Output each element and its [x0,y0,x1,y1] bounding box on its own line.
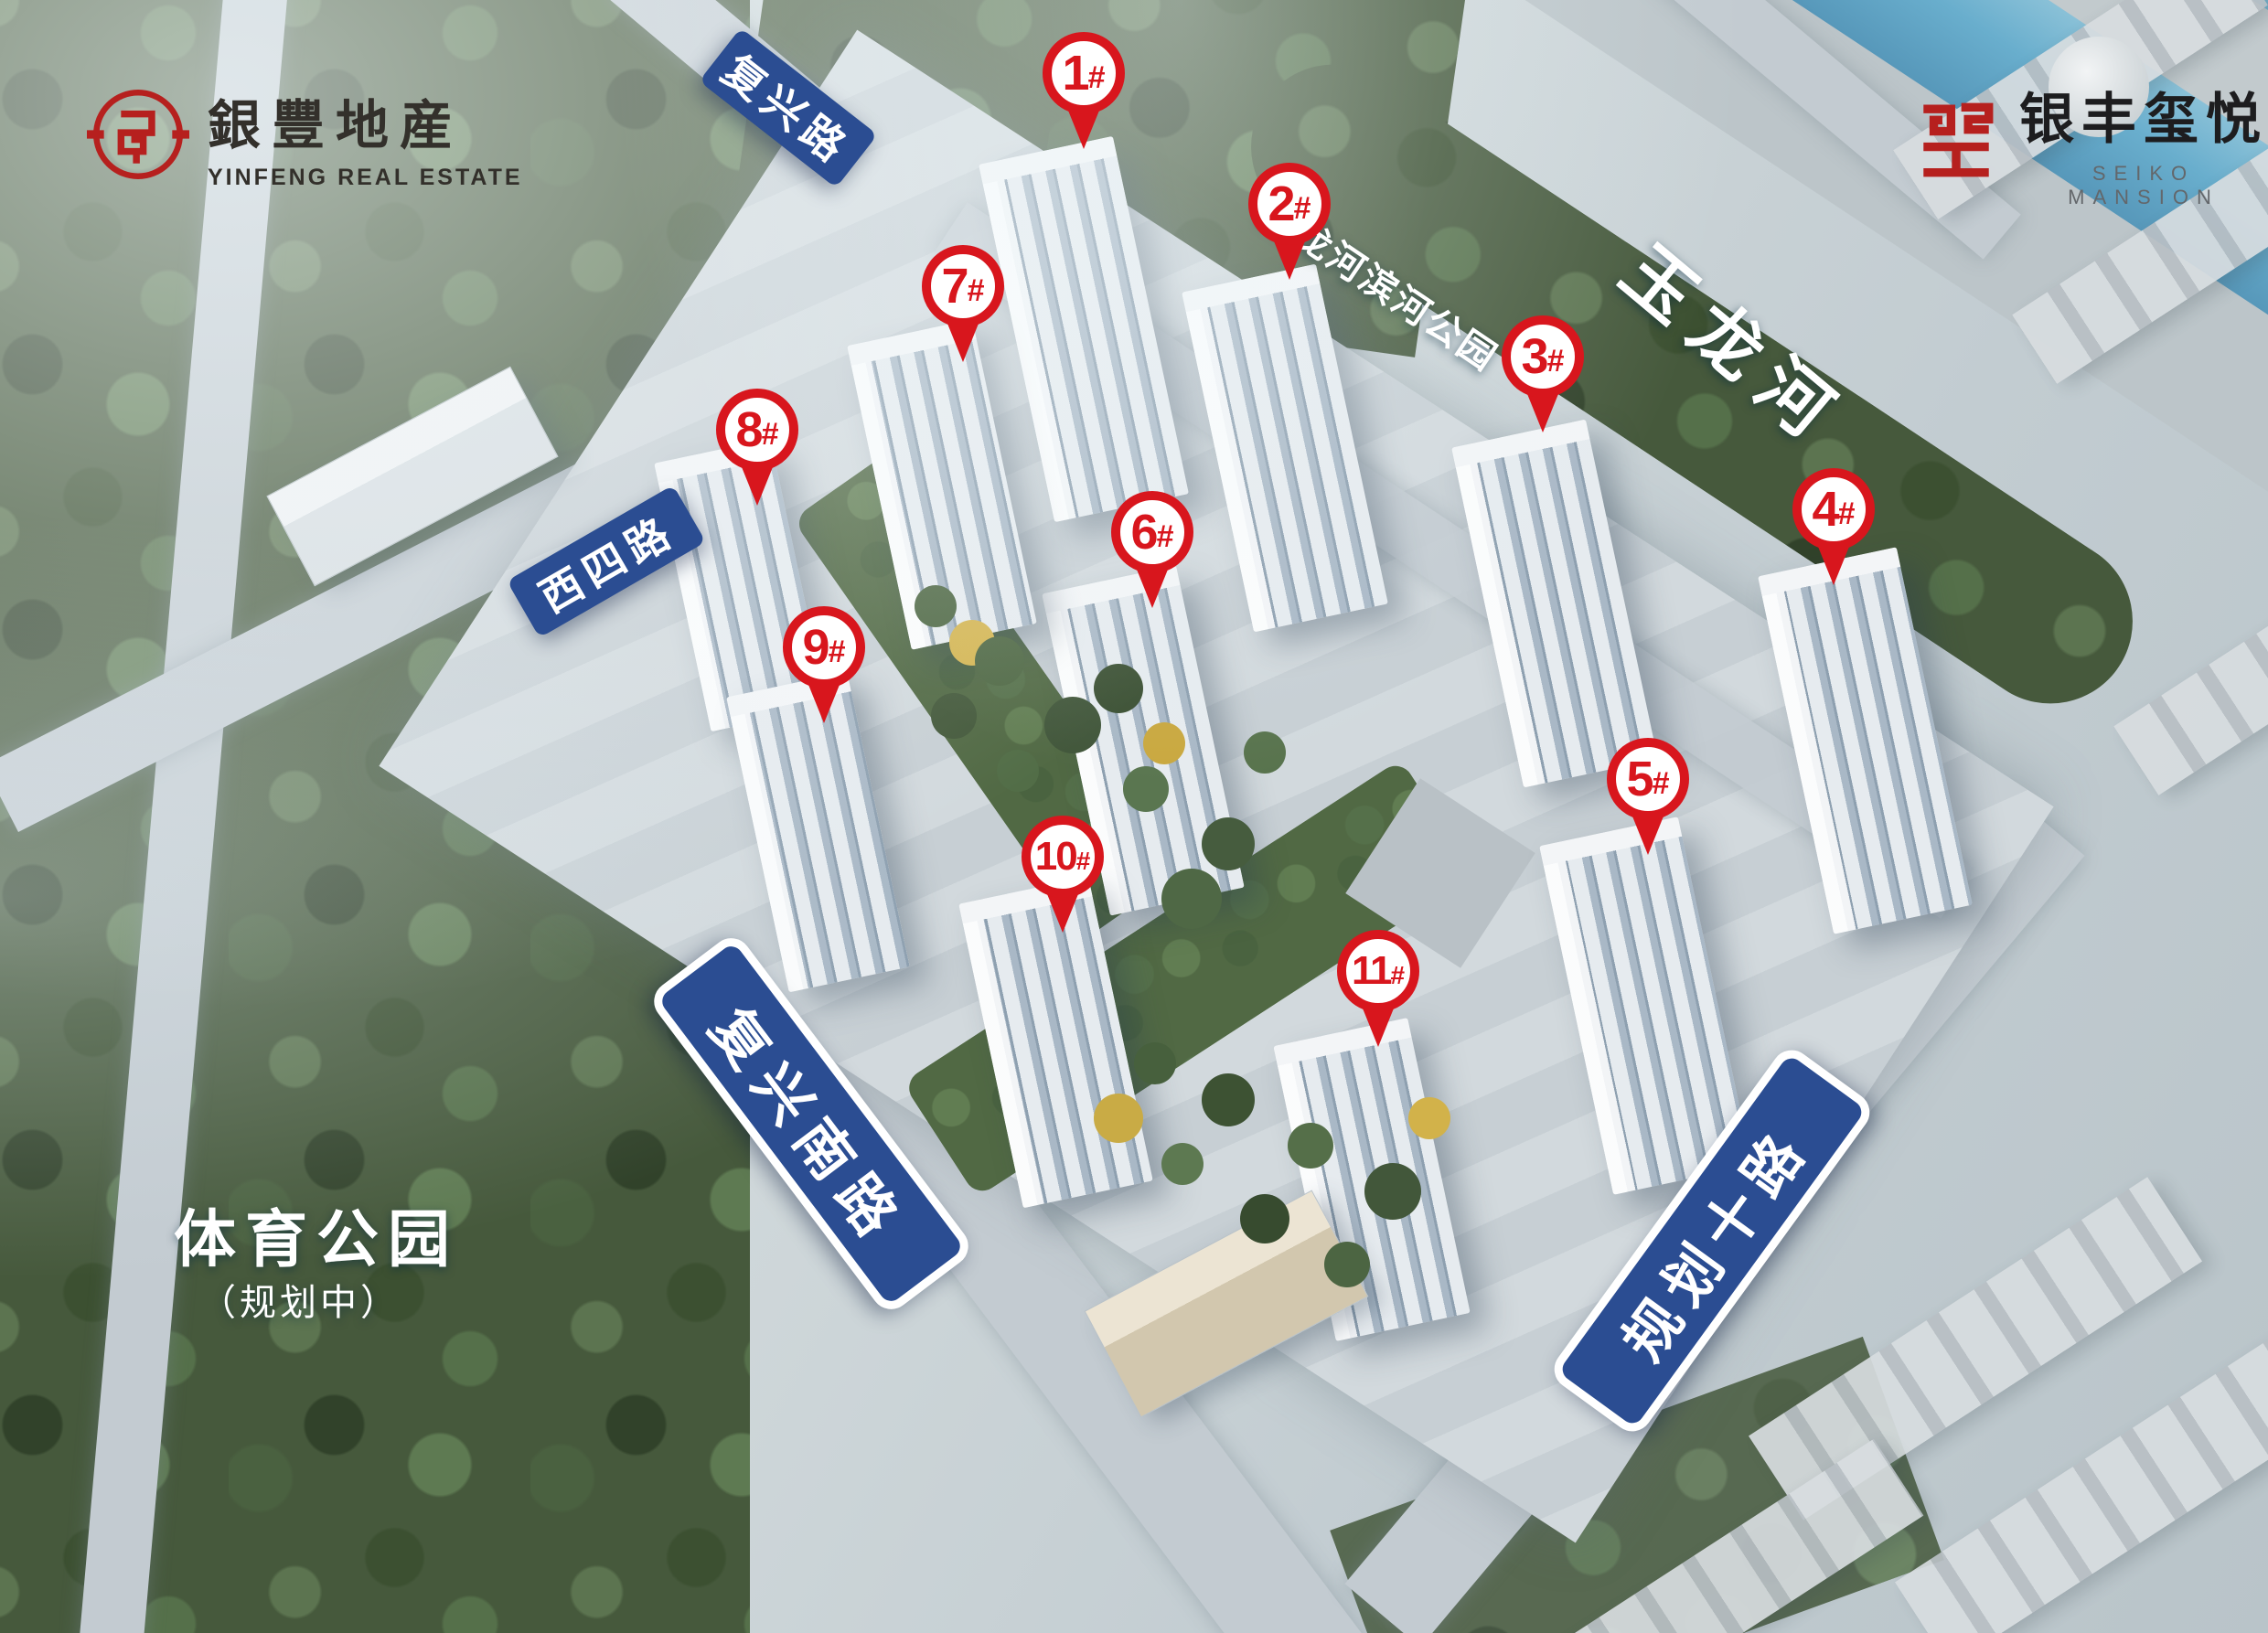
seiko-mansion-seal-icon [1913,97,1999,187]
marker-bubble: 8# [716,389,798,471]
marker-bubble: 2# [1248,163,1331,245]
marker-number: 4 [1813,485,1838,534]
tree-grove [1134,1042,1176,1084]
marker-bubble: 1# [1043,32,1125,114]
marker-number: 2 [1268,179,1294,229]
marker-number: 9 [803,623,829,672]
marker-hash: # [1547,346,1565,377]
marker-number: 1 [1063,48,1088,98]
marker-bubble: 5# [1607,738,1689,820]
marker-number: 6 [1131,507,1157,557]
marker-hash: # [968,275,985,306]
building-marker-7: 7# [922,245,1004,362]
marker-hash: # [1390,963,1405,988]
marker-number: 3 [1522,332,1547,381]
tree-grove [915,585,957,627]
marker-bubble: 4# [1792,468,1875,550]
developer-logo: 銀豐地産 YINFENG REAL ESTATE [87,82,523,191]
marker-number: 8 [736,405,762,454]
developer-name-cn: 銀豐地産 [208,82,523,159]
marker-number: 10 [1035,837,1076,877]
building-marker-6: 6# [1111,491,1193,608]
developer-name-en: YINFENG REAL ESTATE [208,165,523,191]
marker-hash: # [829,636,846,667]
marker-number: 11 [1352,951,1391,991]
building-marker-8: 8# [716,389,798,506]
marker-number: 7 [942,261,968,311]
marker-hash: # [1653,768,1670,799]
marker-hash: # [762,419,779,450]
building-marker-1: 1# [1043,32,1125,149]
project-logo: 银丰玺悦 SEIKO MANSION [1913,75,2268,209]
building-marker-9: 9# [783,606,865,723]
yinfeng-seal-icon [87,83,189,190]
building-marker-3: 3# [1502,315,1584,432]
marker-hash: # [1294,193,1311,224]
building-marker-5: 5# [1607,738,1689,855]
building-marker-4: 4# [1792,468,1875,585]
context-block [2113,567,2268,795]
building-marker-2: 2# [1248,163,1331,280]
marker-hash: # [1076,849,1091,874]
marker-hash: # [1088,62,1106,93]
marker-bubble: 11# [1337,930,1419,1012]
project-name-cn: 银丰玺悦 [2019,75,2268,155]
sports-park-title: 体育公园 [174,1189,459,1279]
marker-bubble: 10# [1022,816,1104,898]
marker-bubble: 7# [922,245,1004,327]
project-name-en: SEIKO MANSION [2019,162,2268,209]
marker-bubble: 9# [783,606,865,688]
marker-bubble: 3# [1502,315,1584,398]
site-plan-rendering: 玉龙河 玉龙河滨河公园 体育公园 （规划中） 复兴路 西四路 复兴南路 规划十路… [0,0,2268,1633]
marker-hash: # [1157,521,1174,552]
marker-hash: # [1838,498,1856,529]
building-marker-10: 10# [1022,816,1104,933]
marker-bubble: 6# [1111,491,1193,573]
building-marker-11: 11# [1337,930,1419,1047]
marker-number: 5 [1627,754,1653,804]
sports-park-status: （规划中） [199,1273,401,1326]
